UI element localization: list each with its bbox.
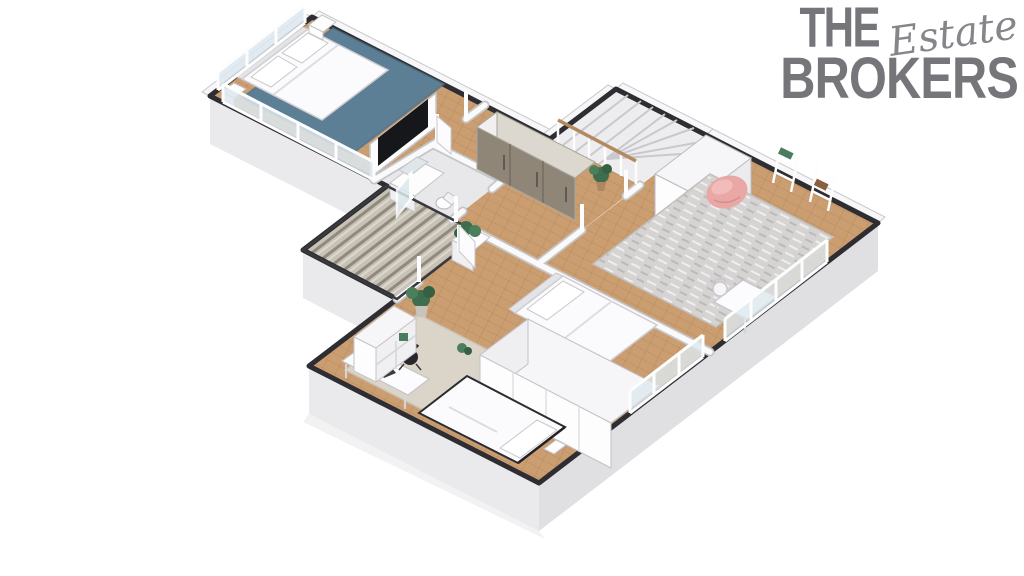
floorplan-render-page: THE Estate BROKERS [0, 0, 1024, 576]
white-chair [713, 282, 727, 296]
shelf-plant [399, 333, 408, 341]
shelf-plants [778, 147, 794, 159]
logo-word-brokers: BROKERS [780, 50, 1018, 108]
estate-brokers-logo: THE Estate BROKERS [735, 2, 1018, 108]
